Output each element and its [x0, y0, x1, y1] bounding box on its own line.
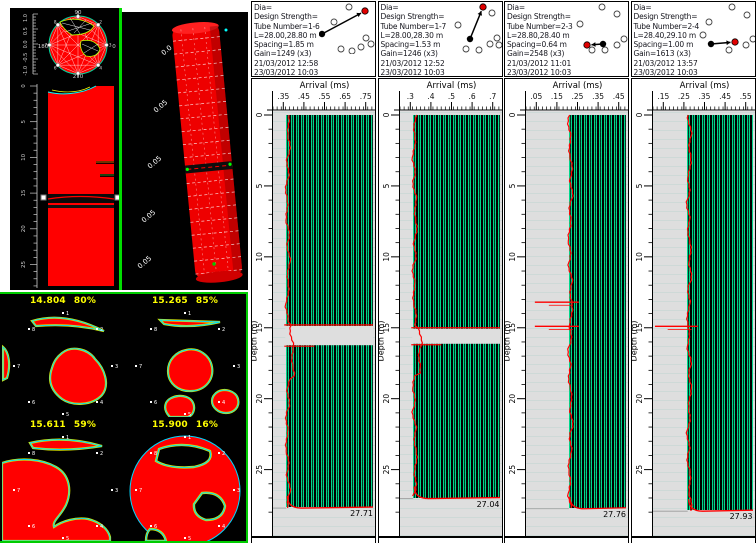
tube-length-value: 27.76 — [603, 510, 626, 519]
tube-marker — [218, 328, 220, 330]
datetime-first: 21/03/2012 11:01 — [507, 59, 628, 68]
tube-marker — [233, 489, 235, 491]
datetime-first: 21/03/2012 12:58 — [254, 59, 375, 68]
arrival-axis: Arrival (ms).15.25.35.45.55 — [632, 79, 756, 111]
tube-marker — [28, 328, 30, 330]
tube-marker — [96, 401, 98, 403]
waterfall-area[interactable]: 27.71 — [273, 111, 375, 536]
arrival-tick-label: .7 — [489, 92, 496, 101]
depth-tick-label: 5 — [21, 119, 27, 123]
waveform-plot: Arrival (ms).15.25.35.45.550510152025Dep… — [631, 78, 756, 537]
depth-tick-label: 5 — [635, 183, 644, 188]
csl-profile-panel-1: Dia=Design Strength=Tube Number=1-6L=28.… — [250, 0, 377, 543]
tube-number-label: 7 — [139, 488, 142, 494]
section-label: 14.80480% — [2, 296, 124, 306]
tube-number-label: 1 — [188, 311, 191, 317]
pile-cylinder: 0.00.050.050.050.05 — [122, 12, 248, 290]
radius-tick-label: 0.0 — [23, 40, 29, 48]
defect-band — [48, 194, 114, 203]
arrival-tick-label: .35 — [698, 92, 710, 101]
arrival-axis-title: Arrival (ms) — [679, 81, 729, 91]
datetime-second: 23/03/2012 10:03 — [381, 68, 502, 77]
depth-axis-title: Depth (m) — [505, 321, 512, 362]
depth-tick-label: 25 — [635, 465, 644, 475]
tube-number-label: 2 — [222, 327, 225, 333]
depth-axis: 0510152025Depth (m) — [252, 111, 273, 536]
tube-number-label: 2 — [222, 451, 225, 457]
tube-marker — [184, 436, 186, 438]
depth-tick-label: 25 — [382, 465, 391, 475]
tube-number-label: 3 — [237, 364, 240, 370]
arrival-tick-label: .25 — [572, 92, 584, 101]
tube-marker — [184, 413, 186, 415]
csl-profile-panel-3: Dia=Design Strength=Tube Number=2-3L=28.… — [503, 0, 630, 543]
depth-tick-label: 0 — [382, 112, 391, 117]
depth-tick-label: 20 — [21, 225, 27, 232]
csl-profile-panel-2: Dia=Design Strength=Tube Number=1-7L=28.… — [377, 0, 504, 543]
tube-marker — [28, 452, 30, 454]
pile-column-view: 0510152025 — [10, 78, 120, 290]
tube-marker — [218, 401, 220, 403]
section-15-900[interactable]: 15.90016% 12345678 — [124, 419, 246, 541]
angle-label-top: 90 — [75, 10, 82, 16]
tube-marker — [135, 489, 137, 491]
tube-number-label: 6 — [32, 400, 35, 406]
arrival-tick-label: .35 — [592, 92, 604, 101]
arrival-tick-label: .15 — [551, 92, 563, 101]
tube-marker — [56, 23, 60, 27]
angle-label-right: 0 — [112, 44, 116, 50]
tube-number-label: 5 — [188, 536, 191, 541]
tube-number-label: 3 — [115, 488, 118, 494]
arrival-tick-label: .65 — [339, 92, 351, 101]
depth-axis: 0510152025Depth (m) — [379, 111, 400, 536]
depth-tick-label: 10 — [508, 252, 517, 262]
next-panel-edge — [251, 537, 376, 543]
tube-layout-diagram — [319, 2, 375, 54]
tube-marker — [233, 365, 235, 367]
depth-axis: 0510152025Depth (m) — [632, 111, 653, 536]
depth-tick-label: 5 — [508, 183, 517, 188]
tube-number-label: 2 — [100, 451, 103, 457]
tube-marker — [62, 413, 64, 415]
cylinder-axis-labels: 0.00.050.050.050.05 — [136, 44, 173, 271]
tomography-sections-panel: 14.80480% 12345678 15.26585% — [0, 292, 248, 543]
tube-marker — [96, 525, 98, 527]
pile-3d-iso-view[interactable]: 0.00.050.050.050.05 — [122, 12, 248, 290]
next-panel-edge — [504, 537, 629, 543]
profile-panels-container: Dia=Design Strength=Tube Number=1-6L=28.… — [250, 0, 756, 543]
radius-tick-label: -0.5 — [23, 53, 29, 63]
waterfall-area[interactable]: 27.93 — [653, 111, 755, 536]
depth-tick-label: 0 — [635, 112, 644, 117]
arrival-tick-label: .4 — [427, 92, 434, 101]
depth-axis-left: 0510152025 — [21, 84, 37, 288]
depth-tick-label: 0 — [21, 84, 27, 88]
arrival-tick-label: .5 — [447, 92, 454, 101]
cylinder-axis-label: 0.05 — [136, 254, 153, 270]
tube-number-label: 7 — [17, 364, 20, 370]
radius-axis: 1.00.50.0-0.5-1.0 — [23, 14, 38, 76]
first-arrival-pick — [400, 111, 502, 536]
radius-tick-label: 0.5 — [23, 27, 29, 35]
cylinder-axis-label: 0.05 — [152, 98, 169, 114]
tube-number-label: 7 — [139, 364, 142, 370]
pile-top-section-view: 1.00.50.0-0.5-1.0 12345678 90 0 180 270 — [10, 8, 120, 78]
tube-number-label: 5 — [66, 412, 69, 417]
depth-tick-label: 25 — [508, 465, 517, 475]
depth-tick-label: 0 — [255, 112, 264, 117]
cylinder-axis-label: 0.0 — [160, 44, 174, 57]
arrival-axis: Arrival (ms).3.4.5.6.7 — [379, 79, 503, 111]
tube-number-label: 6 — [154, 524, 157, 530]
waveform-plot: Arrival (ms).35.45.55.65.750510152025Dep… — [251, 78, 376, 537]
depth-tick-label: 10 — [255, 252, 264, 262]
depth-axis-title: Depth (m) — [379, 321, 386, 362]
tube-layout-diagram — [699, 2, 755, 54]
depth-tick-label: 10 — [21, 153, 27, 160]
section-label: 15.90016% — [124, 420, 246, 430]
arrival-axis: Arrival (ms).05.15.25.35.45 — [505, 79, 629, 111]
panel-header: Dia=Design Strength=Tube Number=1-7L=28.… — [378, 1, 503, 77]
first-arrival-pick — [526, 111, 628, 536]
arrival-tick-label: .15 — [657, 92, 669, 101]
tube-marker — [96, 328, 98, 330]
tube-number-label: 6 — [154, 400, 157, 406]
arrival-axis: Arrival (ms).35.45.55.65.75 — [252, 79, 376, 111]
panel-header: Dia=Design Strength=Tube Number=1-6L=28.… — [251, 1, 376, 77]
datetime-second: 23/03/2012 10:03 — [254, 68, 375, 77]
waterfall-area[interactable]: 27.76 — [526, 111, 628, 536]
depth-tick-label: 20 — [508, 394, 517, 404]
tube-marker — [13, 489, 15, 491]
tube-marker — [111, 365, 113, 367]
defect-band — [48, 205, 114, 208]
tube-marker — [96, 452, 98, 454]
arrival-axis-title: Arrival (ms) — [300, 81, 350, 91]
arrival-axis-title: Arrival (ms) — [553, 81, 603, 91]
angle-label-left: 180 — [38, 44, 49, 50]
tube-marker — [218, 525, 220, 527]
depth-tick-label: 20 — [255, 394, 264, 404]
csl-application-window: 1.00.50.0-0.5-1.0 12345678 90 0 180 270 … — [0, 0, 756, 543]
tube-marker — [150, 401, 152, 403]
slice-handle-left[interactable] — [41, 195, 46, 200]
tube-marker — [150, 452, 152, 454]
depth-axis-title: Depth (m) — [632, 321, 639, 362]
tube-number-label: 3 — [115, 364, 118, 370]
depth-tick-label: 20 — [635, 394, 644, 404]
radius-tick-label: 1.0 — [23, 14, 29, 22]
tube-marker — [13, 365, 15, 367]
csl-profile-panel-4: Dia=Design Strength=Tube Number=2-4L=28.… — [630, 0, 756, 543]
datetime-second: 23/03/2012 10:03 — [507, 68, 628, 77]
tube-marker — [150, 525, 152, 527]
tube-marker — [184, 312, 186, 314]
arrival-tick-label: .3 — [406, 92, 413, 101]
tube-number-label: 2 — [100, 327, 103, 333]
minor-defect — [100, 174, 114, 177]
tube-layout-diagram — [572, 2, 628, 54]
panel-header: Dia=Design Strength=Tube Number=2-3L=28.… — [504, 1, 629, 77]
tube-marker — [28, 401, 30, 403]
panel-header: Dia=Design Strength=Tube Number=2-4L=28.… — [631, 1, 756, 77]
tube-number-label: 4 — [100, 524, 103, 530]
arrival-tick-label: .55 — [319, 92, 331, 101]
tube-number-label: 8 — [32, 327, 35, 333]
section-14-804[interactable]: 14.80480% 12345678 — [2, 295, 124, 417]
depth-tick-label: 5 — [255, 183, 264, 188]
datetime-second: 23/03/2012 10:03 — [634, 68, 755, 77]
tube-marker — [62, 436, 64, 438]
section-15-611[interactable]: 15.61159% 12345678 — [2, 419, 124, 541]
arrival-tick-label: .75 — [360, 92, 372, 101]
arrival-tick-label: .45 — [298, 92, 310, 101]
arrival-tick-label: .6 — [468, 92, 475, 101]
arrival-tick-label: .45 — [613, 92, 625, 101]
tube-marker — [218, 452, 220, 454]
tube-marker — [111, 489, 113, 491]
arrival-tick-label: .25 — [677, 92, 689, 101]
tube-number-label: 1 — [188, 435, 191, 441]
radius-tick-label: -1.0 — [23, 66, 29, 76]
tube-number-label: 4 — [99, 65, 102, 70]
arrival-tick-label: .55 — [739, 92, 751, 101]
cylinder-axis-label: 0.05 — [146, 154, 163, 170]
depth-tick-label: 0 — [508, 112, 517, 117]
depth-tick-label: 25 — [21, 261, 27, 268]
tube-number-label: 1 — [66, 311, 69, 317]
tube-marker — [56, 63, 60, 67]
datetime-first: 21/03/2012 12:52 — [381, 59, 502, 68]
tube-marker — [135, 365, 137, 367]
section-15-265[interactable]: 15.26585% 12345678 — [124, 295, 246, 417]
tube-marker-3d — [212, 262, 215, 265]
tube-number-label: 6 — [54, 65, 57, 70]
section-label: 15.26585% — [124, 296, 246, 306]
tube-number-label: 6 — [32, 524, 35, 530]
tube-number-label: 8 — [154, 451, 157, 457]
depth-tick-label: 10 — [382, 252, 391, 262]
tube-number-label: 3 — [237, 488, 240, 494]
first-arrival-pick — [653, 111, 755, 536]
waterfall-area[interactable]: 27.04 — [400, 111, 502, 536]
depth-axis: 0510152025Depth (m) — [505, 111, 526, 536]
arrival-tick-label: .05 — [530, 92, 542, 101]
tube-number-label: 8 — [154, 327, 157, 333]
tube-number-label: 4 — [222, 400, 225, 406]
tube-marker — [184, 537, 186, 539]
pile-column — [48, 86, 114, 286]
waveform-plot: Arrival (ms).05.15.25.35.450510152025Dep… — [504, 78, 629, 537]
arrival-axis-title: Arrival (ms) — [426, 81, 476, 91]
tube-marker — [105, 43, 109, 47]
depth-tick-label: 15 — [21, 189, 27, 196]
tube-number-label: 7 — [17, 488, 20, 494]
tube-number-label: 8 — [32, 451, 35, 457]
first-arrival-pick — [273, 111, 375, 536]
tube-length-value: 27.04 — [477, 500, 500, 509]
tube-marker — [62, 537, 64, 539]
tube-number-label: 8 — [54, 20, 57, 25]
depth-tick-label: 5 — [382, 183, 391, 188]
tube-marker — [62, 312, 64, 314]
depth-tick-label: 20 — [382, 394, 391, 404]
depth-tick-label: 25 — [255, 465, 264, 475]
tube-length-value: 27.71 — [350, 509, 373, 518]
depth-axis-title: Depth (m) — [252, 321, 259, 362]
section-label: 15.61159% — [2, 420, 124, 430]
waveform-plot: Arrival (ms).3.4.5.6.70510152025Depth (m… — [378, 78, 503, 537]
tube-number-label: 5 — [188, 412, 191, 417]
datetime-first: 21/03/2012 13:57 — [634, 59, 755, 68]
next-panel-edge — [378, 537, 503, 543]
arrival-tick-label: .35 — [277, 92, 289, 101]
tube-number-label: 2 — [99, 20, 102, 25]
tube-number-label: 4 — [222, 524, 225, 530]
next-panel-edge — [631, 537, 756, 543]
arrival-tick-label: .45 — [719, 92, 731, 101]
tube-number-label: 5 — [66, 536, 69, 541]
pile-3d-front-view[interactable]: 1.00.50.0-0.5-1.0 12345678 90 0 180 270 … — [10, 8, 120, 290]
tube-marker-3d — [225, 29, 228, 32]
tube-marker — [28, 525, 30, 527]
tube-number-label: 4 — [100, 400, 103, 406]
tube-marker — [150, 328, 152, 330]
tube-number-label: 1 — [66, 435, 69, 441]
depth-tick-label: 10 — [635, 252, 644, 262]
tube-length-value: 27.93 — [730, 512, 753, 521]
tube-layout-diagram — [446, 2, 502, 54]
cylinder-axis-label: 0.05 — [140, 208, 157, 224]
